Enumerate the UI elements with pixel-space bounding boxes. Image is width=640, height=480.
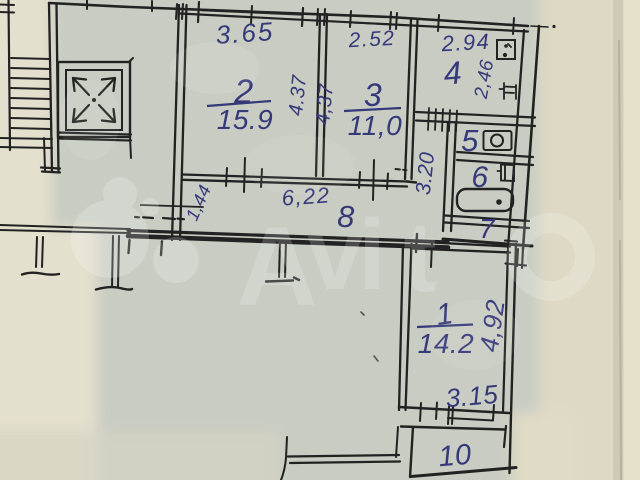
svg-text:A: A [237, 204, 318, 329]
svg-text:7: 7 [479, 213, 496, 244]
svg-text:2.94: 2.94 [440, 29, 491, 57]
svg-text:i: i [358, 199, 386, 311]
svg-text:10: 10 [437, 439, 473, 474]
svg-text:4.37: 4.37 [285, 74, 311, 117]
svg-text:2.52: 2.52 [347, 27, 396, 52]
svg-text:11,0: 11,0 [348, 110, 402, 141]
svg-text:v: v [307, 199, 363, 311]
svg-text:3.15: 3.15 [444, 379, 499, 413]
svg-text:5: 5 [461, 123, 479, 158]
svg-text:4: 4 [442, 54, 463, 91]
svg-text:3: 3 [364, 77, 382, 113]
svg-text:3.20: 3.20 [412, 151, 439, 196]
svg-text:15.9: 15.9 [217, 104, 274, 135]
svg-text:t: t [403, 201, 436, 313]
svg-text:6: 6 [471, 161, 488, 194]
svg-text:4,37: 4,37 [312, 83, 338, 126]
